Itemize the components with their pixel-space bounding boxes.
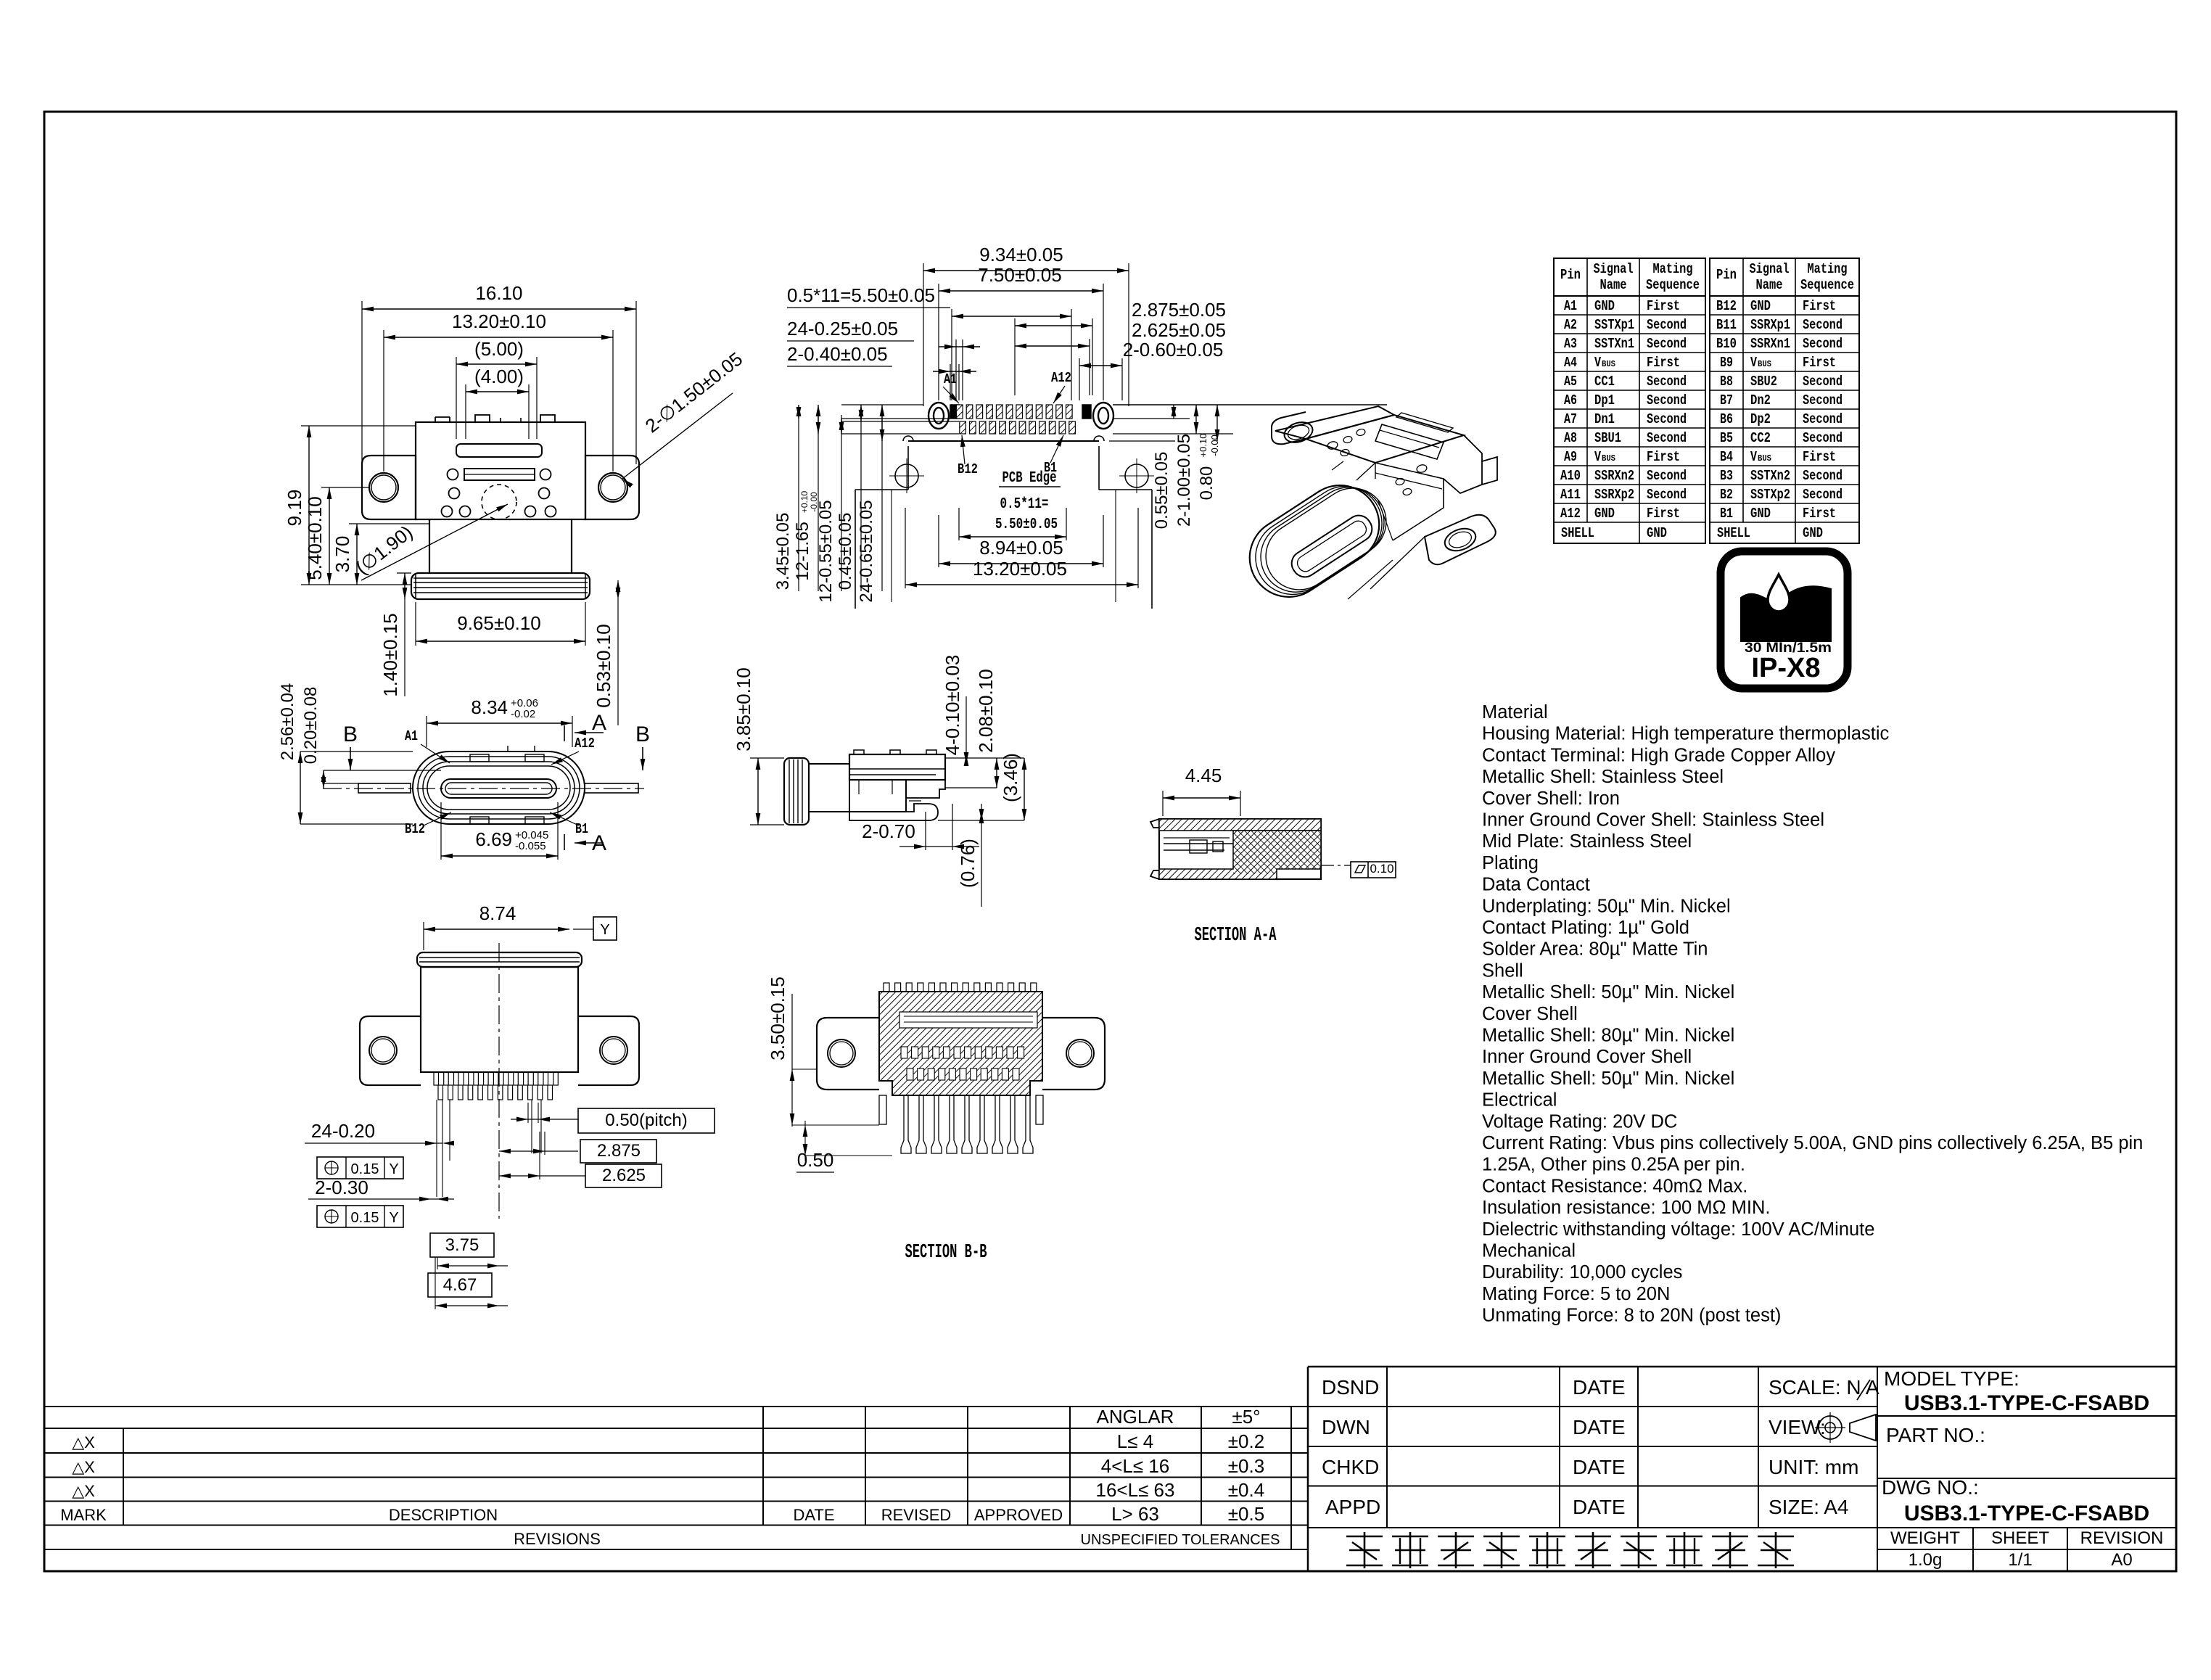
- svg-text:B11: B11: [1716, 317, 1737, 333]
- svg-text:A1: A1: [1564, 298, 1577, 314]
- svg-text:A: A: [592, 711, 606, 735]
- svg-text:Second: Second: [1647, 487, 1687, 503]
- svg-text:B8: B8: [1720, 374, 1733, 390]
- svg-text:4.45: 4.45: [1185, 765, 1222, 786]
- svg-text:4.67: 4.67: [443, 1275, 477, 1295]
- svg-text:Name: Name: [1756, 277, 1783, 293]
- svg-text:Second: Second: [1647, 430, 1687, 446]
- svg-text:3.85±0.10: 3.85±0.10: [733, 667, 754, 751]
- svg-text:SSRXn1: SSRXn1: [1750, 336, 1790, 352]
- svg-text:-0.055: -0.055: [515, 840, 546, 852]
- svg-text:First: First: [1803, 355, 1836, 371]
- svg-text:Contact Plating: 1µ" Gold: Contact Plating: 1µ" Gold: [1482, 918, 1689, 938]
- svg-text:Data Contact: Data Contact: [1482, 875, 1590, 895]
- svg-text:A8: A8: [1564, 430, 1577, 446]
- svg-text:APPD: APPD: [1325, 1496, 1380, 1518]
- svg-text:MODEL TYPE:: MODEL TYPE:: [1884, 1367, 2019, 1390]
- svg-text:12-1.65: 12-1.65: [793, 522, 812, 580]
- svg-text:Cover Shell: Cover Shell: [1482, 1004, 1578, 1024]
- svg-text:Second: Second: [1647, 468, 1687, 484]
- svg-text:1.40±0.15: 1.40±0.15: [379, 613, 401, 696]
- svg-text:2.875: 2.875: [597, 1141, 641, 1161]
- svg-text:(4.00): (4.00): [474, 366, 524, 387]
- svg-text:Electrical: Electrical: [1482, 1090, 1557, 1111]
- svg-text:3.50±0.15: 3.50±0.15: [767, 976, 789, 1060]
- svg-text:8.94±0.05: 8.94±0.05: [979, 537, 1063, 559]
- svg-text:3.45±0.05: 3.45±0.05: [773, 513, 793, 590]
- svg-text:±0.3: ±0.3: [1228, 1455, 1264, 1477]
- svg-text:Voltage Rating: 20V DC: Voltage Rating: 20V DC: [1482, 1111, 1677, 1132]
- svg-text:+0.10: +0.10: [1198, 434, 1209, 458]
- svg-text:Second: Second: [1803, 411, 1842, 427]
- svg-text:9.19: 9.19: [284, 490, 305, 527]
- svg-text:GND: GND: [1750, 506, 1771, 522]
- svg-text:First: First: [1647, 449, 1680, 465]
- svg-text:A1: A1: [944, 371, 957, 387]
- svg-text:PCB Edge: PCB Edge: [1002, 470, 1057, 487]
- svg-text:IP-X8: IP-X8: [1751, 653, 1820, 683]
- svg-text:Inner Ground Cover Shell: Stai: Inner Ground Cover Shell: Stainless Stee…: [1482, 810, 1824, 831]
- svg-text:Name: Name: [1600, 277, 1627, 293]
- svg-text:△X: △X: [72, 1433, 95, 1452]
- svg-text:13.20±0.05: 13.20±0.05: [973, 558, 1067, 580]
- svg-text:-0.00: -0.00: [1209, 435, 1220, 456]
- svg-text:A2: A2: [1564, 317, 1577, 333]
- svg-text:B4: B4: [1720, 449, 1733, 465]
- svg-text:A5: A5: [1564, 374, 1577, 390]
- svg-text:B1: B1: [575, 821, 588, 837]
- svg-text:9.65±0.10: 9.65±0.10: [457, 612, 540, 634]
- svg-text:UNIT: mm: UNIT: mm: [1769, 1456, 1858, 1478]
- svg-text:A6: A6: [1564, 392, 1577, 408]
- svg-text:2.625: 2.625: [602, 1166, 646, 1185]
- svg-text:Y: Y: [389, 1161, 398, 1177]
- svg-text:Dp2: Dp2: [1750, 411, 1771, 427]
- svg-text:Dp1: Dp1: [1594, 392, 1615, 408]
- svg-text:4<L≤ 16: 4<L≤ 16: [1101, 1455, 1170, 1477]
- svg-text:±0.5: ±0.5: [1228, 1503, 1264, 1525]
- svg-text:B2: B2: [1720, 487, 1733, 503]
- svg-text:Contact Resistance: 40mΩ Max.: Contact Resistance: 40mΩ Max.: [1482, 1176, 1747, 1196]
- svg-text:0.20±0.08: 0.20±0.08: [301, 687, 321, 765]
- svg-text:SIZE: A4: SIZE: A4: [1769, 1496, 1849, 1518]
- svg-text:BUS: BUS: [1602, 359, 1615, 369]
- svg-text:PART NO.:: PART NO.:: [1886, 1424, 1985, 1446]
- svg-text:5.50±0.05: 5.50±0.05: [995, 516, 1058, 533]
- svg-text:0.50: 0.50: [797, 1149, 834, 1171]
- svg-text:GND: GND: [1647, 525, 1667, 541]
- svg-text:A1: A1: [405, 728, 418, 744]
- svg-text:Dn2: Dn2: [1750, 392, 1771, 408]
- svg-text:SECTION B-B: SECTION B-B: [905, 1242, 987, 1264]
- svg-text:GND: GND: [1750, 298, 1771, 314]
- svg-text:16.10: 16.10: [475, 282, 522, 304]
- svg-text:B5: B5: [1720, 430, 1733, 446]
- svg-text:Metallic Shell: 50µ" Min. Nick: Metallic Shell: 50µ" Min. Nickel: [1482, 982, 1734, 1002]
- svg-text:2-0.30: 2-0.30: [315, 1177, 368, 1198]
- svg-text:SBU2: SBU2: [1750, 374, 1777, 390]
- svg-text:Dn1: Dn1: [1594, 411, 1615, 427]
- svg-text:Metallic Shell: 50µ" Min. Nick: Metallic Shell: 50µ" Min. Nickel: [1482, 1068, 1734, 1089]
- svg-text:B9: B9: [1720, 355, 1733, 371]
- svg-text:Y: Y: [389, 1210, 398, 1226]
- svg-text:Second: Second: [1803, 468, 1842, 484]
- svg-text:Second: Second: [1803, 487, 1842, 503]
- svg-text:△X: △X: [72, 1458, 95, 1476]
- svg-text:8.74: 8.74: [479, 902, 516, 924]
- svg-text:Shell: Shell: [1482, 960, 1523, 981]
- svg-text:SSRXp2: SSRXp2: [1594, 487, 1634, 503]
- svg-text:Second: Second: [1803, 430, 1842, 446]
- svg-text:2-0.60±0.05: 2-0.60±0.05: [1123, 339, 1224, 361]
- svg-text:SSTXp2: SSTXp2: [1750, 487, 1790, 503]
- svg-text:SHELL: SHELL: [1717, 525, 1750, 541]
- svg-text:B12: B12: [958, 461, 978, 477]
- svg-text:Mating Force: 5 to 20N: Mating Force: 5 to 20N: [1482, 1284, 1670, 1304]
- svg-text:24-0.20: 24-0.20: [311, 1120, 375, 1142]
- svg-text:CC2: CC2: [1750, 430, 1771, 446]
- svg-text:Mechanical: Mechanical: [1482, 1241, 1576, 1261]
- svg-text:A11: A11: [1560, 487, 1581, 503]
- svg-text:Mating: Mating: [1653, 261, 1693, 277]
- svg-text:Second: Second: [1803, 336, 1842, 352]
- svg-text:Metallic Shell: Stainless Stee: Metallic Shell: Stainless Steel: [1482, 767, 1724, 787]
- svg-text:BUS: BUS: [1758, 359, 1771, 369]
- svg-text:Solder Area: 80µ" Matte Tin: Solder Area: 80µ" Matte Tin: [1482, 939, 1708, 960]
- svg-text:0.10: 0.10: [1370, 862, 1393, 876]
- svg-text:SSTXp1: SSTXp1: [1594, 317, 1634, 333]
- svg-text:4-0.10±0.03: 4-0.10±0.03: [942, 655, 963, 756]
- svg-text:2-1.00±0.05: 2-1.00±0.05: [1174, 434, 1194, 527]
- svg-text:Sequence: Sequence: [1800, 277, 1854, 293]
- svg-text:DATE: DATE: [1573, 1496, 1626, 1518]
- svg-text:Y: Y: [600, 922, 609, 938]
- svg-text:Mating: Mating: [1808, 261, 1848, 277]
- svg-text:Inner Ground Cover Shell: Inner Ground Cover Shell: [1482, 1047, 1692, 1067]
- svg-text:First: First: [1803, 449, 1836, 465]
- svg-text:0.50(pitch): 0.50(pitch): [605, 1111, 687, 1130]
- svg-text:Second: Second: [1647, 336, 1687, 352]
- svg-text:0.15: 0.15: [351, 1161, 379, 1177]
- svg-text:2-0.70: 2-0.70: [862, 820, 915, 842]
- svg-text:Housing Material: High tempera: Housing Material: High temperature therm…: [1482, 724, 1889, 744]
- svg-text:First: First: [1803, 298, 1836, 314]
- svg-text:REVISIONS: REVISIONS: [514, 1530, 601, 1548]
- svg-text:SSRXn2: SSRXn2: [1594, 468, 1634, 484]
- svg-text:USB3.1-TYPE-C-FSABD: USB3.1-TYPE-C-FSABD: [1904, 1502, 2149, 1525]
- svg-text:Signal: Signal: [1750, 261, 1790, 277]
- svg-text:A4: A4: [1564, 355, 1577, 371]
- svg-text:Second: Second: [1647, 392, 1687, 408]
- svg-text:Signal: Signal: [1594, 261, 1634, 277]
- svg-text:±0.4: ±0.4: [1228, 1479, 1264, 1501]
- svg-text:0.15: 0.15: [351, 1210, 379, 1226]
- svg-text:Unmating Force: 8 to 20N (post: Unmating Force: 8 to 20N (post test): [1482, 1306, 1781, 1326]
- svg-text:V: V: [1750, 355, 1757, 371]
- svg-text:24-0.25±0.05: 24-0.25±0.05: [787, 318, 898, 339]
- svg-text:1/1: 1/1: [2008, 1550, 2032, 1570]
- svg-text:B7: B7: [1720, 392, 1733, 408]
- svg-text:+0.10: +0.10: [799, 490, 810, 513]
- svg-text:Underplating: 50µ" Min. Nickel: Underplating: 50µ" Min. Nickel: [1482, 896, 1731, 916]
- svg-text:BUS: BUS: [1758, 453, 1771, 464]
- svg-text:16<L≤ 63: 16<L≤ 63: [1096, 1479, 1175, 1501]
- svg-text:DWN: DWN: [1322, 1416, 1370, 1438]
- svg-text:USB3.1-TYPE-C-FSABD: USB3.1-TYPE-C-FSABD: [1904, 1391, 2149, 1415]
- svg-text:First: First: [1647, 506, 1680, 522]
- svg-text:SBU1: SBU1: [1594, 430, 1621, 446]
- svg-text:SCALE: N A: SCALE: N A: [1769, 1376, 1879, 1399]
- svg-text:ANGLAR: ANGLAR: [1097, 1406, 1174, 1428]
- svg-text:2.56±0.04: 2.56±0.04: [278, 683, 297, 761]
- svg-text:△X: △X: [72, 1482, 95, 1500]
- svg-text:B3: B3: [1720, 468, 1733, 484]
- svg-text:Second: Second: [1647, 411, 1687, 427]
- svg-text:A12: A12: [575, 736, 595, 752]
- svg-text:CC1: CC1: [1594, 374, 1615, 390]
- svg-text:Second: Second: [1647, 317, 1687, 333]
- svg-text:A9: A9: [1564, 449, 1577, 465]
- svg-text:Pin: Pin: [1716, 267, 1737, 283]
- svg-text:L≤ 4: L≤ 4: [1117, 1430, 1153, 1452]
- svg-text:1.25A, Other pins 0.25A per pi: 1.25A, Other pins 0.25A per pin.: [1482, 1155, 1745, 1175]
- svg-text:5.40±0.10: 5.40±0.10: [304, 496, 326, 580]
- svg-text:1.0g: 1.0g: [1909, 1550, 1943, 1570]
- svg-text:B10: B10: [1716, 336, 1737, 352]
- svg-text:9.34±0.05: 9.34±0.05: [979, 244, 1063, 265]
- svg-text:DSND: DSND: [1322, 1376, 1379, 1399]
- svg-text:APPROVED: APPROVED: [974, 1506, 1063, 1524]
- svg-text:±5°: ±5°: [1232, 1406, 1260, 1428]
- svg-text:Durability: 10,000 cycles: Durability: 10,000 cycles: [1482, 1262, 1682, 1282]
- svg-text:SECTION A-A: SECTION A-A: [1195, 925, 1277, 947]
- svg-text:REVISED: REVISED: [881, 1506, 952, 1524]
- svg-text:(3.46): (3.46): [1000, 753, 1021, 802]
- svg-text:DESCRIPTION: DESCRIPTION: [389, 1506, 498, 1524]
- svg-text:B6: B6: [1720, 411, 1733, 427]
- svg-text:First: First: [1803, 506, 1836, 522]
- svg-text:12-0.55±0.05: 12-0.55±0.05: [816, 500, 836, 602]
- svg-text:L> 63: L> 63: [1111, 1503, 1159, 1525]
- svg-text:First: First: [1647, 298, 1680, 314]
- svg-text:Second: Second: [1803, 317, 1842, 333]
- svg-text:GND: GND: [1594, 506, 1615, 522]
- svg-text:6.69: 6.69: [475, 828, 512, 850]
- svg-text:V: V: [1594, 355, 1601, 371]
- svg-text:UNSPECIFIED TOLERANCES: UNSPECIFIED TOLERANCES: [1081, 1532, 1280, 1548]
- svg-text:Insulation resistance: 100 MΩ: Insulation resistance: 100 MΩ MIN.: [1482, 1198, 1770, 1218]
- svg-text:BUS: BUS: [1602, 453, 1615, 464]
- svg-text:-0.02: -0.02: [511, 708, 535, 720]
- svg-text:0.53±0.10: 0.53±0.10: [593, 624, 614, 707]
- svg-text:Current Rating: Vbus pins coll: Current Rating: Vbus pins collectively 5…: [1482, 1133, 2143, 1153]
- svg-text:7.50±0.05: 7.50±0.05: [978, 264, 1061, 286]
- svg-text:3.75: 3.75: [445, 1235, 479, 1255]
- svg-text:Mid Plate: Stainless Steel: Mid Plate: Stainless Steel: [1482, 831, 1692, 852]
- svg-text:Dielectric withstanding vóltag: Dielectric withstanding vóltage: 100V AC…: [1482, 1219, 1874, 1240]
- svg-text:GND: GND: [1594, 298, 1615, 314]
- svg-text:DATE: DATE: [1573, 1456, 1626, 1478]
- svg-text:0.5*11=: 0.5*11=: [1000, 496, 1049, 513]
- svg-text:-0.00: -0.00: [809, 492, 819, 512]
- svg-text:Material: Material: [1482, 702, 1548, 722]
- svg-text:2.875±0.05: 2.875±0.05: [1132, 299, 1226, 321]
- svg-text:SSRXp1: SSRXp1: [1750, 317, 1790, 333]
- svg-text:A7: A7: [1564, 411, 1577, 427]
- svg-text:0.45±0.05: 0.45±0.05: [836, 513, 855, 590]
- svg-text:SSTXn2: SSTXn2: [1750, 468, 1790, 484]
- svg-text:B: B: [343, 722, 358, 746]
- svg-text:0.5*11=5.50±0.05: 0.5*11=5.50±0.05: [787, 284, 935, 306]
- svg-text:A10: A10: [1560, 468, 1581, 484]
- svg-text:A0: A0: [2111, 1550, 2132, 1570]
- svg-text:A3: A3: [1564, 336, 1577, 352]
- svg-text:B12: B12: [1716, 298, 1737, 314]
- svg-text:WEIGHT: WEIGHT: [1890, 1528, 1960, 1548]
- svg-text:CHKD: CHKD: [1322, 1456, 1379, 1478]
- svg-text:B: B: [635, 722, 650, 746]
- svg-text:V: V: [1750, 449, 1757, 465]
- svg-text:GND: GND: [1803, 525, 1823, 541]
- svg-text:B1: B1: [1720, 506, 1733, 522]
- svg-text:SSTXn1: SSTXn1: [1594, 336, 1634, 352]
- svg-text:Pin: Pin: [1560, 267, 1581, 283]
- svg-text:DATE: DATE: [1573, 1416, 1626, 1438]
- svg-text:B12: B12: [405, 821, 425, 837]
- svg-text:8.34: 8.34: [471, 696, 508, 718]
- svg-text:2.08±0.10: 2.08±0.10: [975, 669, 997, 752]
- svg-text:Cover Shell: Iron: Cover Shell: Iron: [1482, 788, 1620, 809]
- svg-text:0.55±0.05: 0.55±0.05: [1152, 452, 1172, 530]
- svg-text:Metallic Shell: 80µ" Min. Nick: Metallic Shell: 80µ" Min. Nickel: [1482, 1026, 1734, 1046]
- svg-text:±0.2: ±0.2: [1228, 1430, 1264, 1452]
- svg-text:Sequence: Sequence: [1646, 277, 1700, 293]
- svg-text:A12: A12: [1560, 506, 1581, 522]
- svg-text:DATE: DATE: [793, 1506, 834, 1524]
- svg-text:A12: A12: [1051, 370, 1071, 386]
- svg-text:First: First: [1647, 355, 1680, 371]
- svg-text:SHEET: SHEET: [1991, 1528, 2049, 1548]
- svg-text:V: V: [1594, 449, 1601, 465]
- svg-text:13.20±0.10: 13.20±0.10: [452, 310, 546, 332]
- svg-text:Second: Second: [1647, 374, 1687, 390]
- svg-text:24-0.65±0.05: 24-0.65±0.05: [857, 500, 876, 602]
- svg-text:REVISION: REVISION: [2080, 1528, 2164, 1548]
- svg-text:Plating: Plating: [1482, 853, 1539, 873]
- svg-text:Second: Second: [1803, 374, 1842, 390]
- svg-text:0.80: 0.80: [1197, 466, 1216, 501]
- svg-text:3.70: 3.70: [332, 536, 353, 573]
- svg-text:DWG NO.:: DWG NO.:: [1882, 1476, 1979, 1499]
- svg-text:(5.00): (5.00): [474, 338, 524, 360]
- svg-text:Second: Second: [1803, 392, 1842, 408]
- svg-text:SHELL: SHELL: [1561, 525, 1594, 541]
- svg-text:2-0.40±0.05: 2-0.40±0.05: [787, 343, 888, 365]
- svg-text:2.625±0.05: 2.625±0.05: [1132, 319, 1226, 341]
- svg-text:DATE: DATE: [1573, 1376, 1626, 1399]
- svg-text:Contact Terminal: High Grade C: Contact Terminal: High Grade Copper Allo…: [1482, 745, 1835, 765]
- svg-text:MARK: MARK: [60, 1506, 107, 1524]
